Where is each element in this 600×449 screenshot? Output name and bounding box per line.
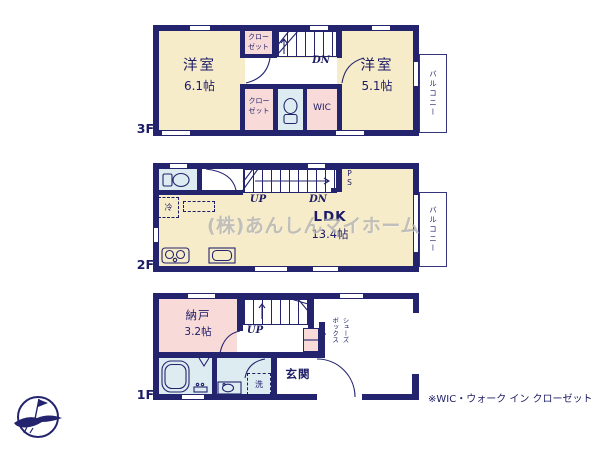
wall-segment [319, 322, 325, 358]
wall-segment [159, 190, 243, 195]
stairs-dn-label-2f: DN [306, 194, 330, 205]
wall-segment [308, 293, 314, 328]
stairs-dn-label-3f: DN [306, 55, 336, 66]
window [153, 228, 159, 242]
closet-top-label: クロー ゼット [243, 33, 274, 53]
wall-segment [331, 188, 342, 192]
logo-pennant [38, 399, 48, 407]
stairs-up-label-2f: UP [246, 194, 270, 205]
staircase-3f [277, 31, 337, 57]
room-size-youshitsu-left: 6.1帖 [159, 79, 240, 93]
washing-machine-space: 洗 [247, 373, 271, 395]
room-toilet-3f [278, 89, 303, 130]
closet-bottom-label: クロー ゼット [243, 97, 275, 117]
shoe-box-label: シューズ ボックス [326, 317, 350, 361]
room-size-youshitsu-right: 5.1帖 [342, 79, 412, 93]
stairs-up-label-1f: UP [244, 325, 266, 336]
room-toilet-2f [159, 169, 197, 190]
room-bathroom [159, 358, 212, 394]
floor-label-3f: 3F [128, 121, 154, 136]
window [255, 266, 287, 272]
hallway-2f [202, 169, 243, 190]
wic-footnote: ※WIC・ウォーク イン クローゼット [428, 390, 593, 405]
entrance-door-arc [317, 359, 355, 397]
watermark: (株)あんしんマイホーム [207, 211, 420, 238]
balcony-3f: バルコニー [419, 54, 447, 133]
staircase-2f [243, 169, 337, 193]
wall-segment [153, 394, 317, 400]
room-label-youshitsu-left: 洋室 [159, 58, 240, 75]
window [372, 25, 390, 31]
wic-label: WIC [307, 103, 337, 114]
window [162, 130, 190, 136]
window [308, 163, 325, 169]
room-label-nando: 納戸 [159, 309, 237, 323]
wall-segment [412, 374, 419, 400]
floor-label-1f: 1F [128, 387, 154, 402]
shoe-box [303, 328, 319, 352]
window [182, 394, 204, 400]
window [336, 130, 364, 136]
company-bird-logo [12, 392, 64, 444]
balcony-2f: バルコニー [419, 192, 447, 267]
balcony-2f-label: バルコニー [428, 206, 439, 254]
shoe-box-label-col1: シューズ [340, 317, 350, 361]
wall-segment [362, 394, 419, 400]
window [170, 163, 187, 169]
wall-segment [337, 31, 342, 58]
logo-bird-body [14, 416, 62, 428]
staircase-1f [243, 299, 308, 325]
refrigerator-space: 冷 [158, 197, 179, 218]
window [313, 266, 338, 272]
balcony-3f-label: バルコニー [428, 70, 439, 118]
room-size-nando: 3.2帖 [159, 326, 237, 339]
pipe-space-label: PS [343, 166, 354, 190]
room-label-genkan: 玄関 [277, 368, 319, 382]
window [340, 293, 363, 299]
wall-segment [413, 299, 419, 313]
shoe-box-label-col2: ボックス [329, 317, 339, 361]
window [190, 25, 210, 31]
floor-plan-canvas: 洋室 6.1帖 洋室 5.1帖 クロー ゼット クロー ゼット WIC DN バ… [0, 0, 600, 449]
floor-label-2f: 2F [128, 257, 154, 272]
room-label-youshitsu-right: 洋室 [342, 58, 412, 75]
